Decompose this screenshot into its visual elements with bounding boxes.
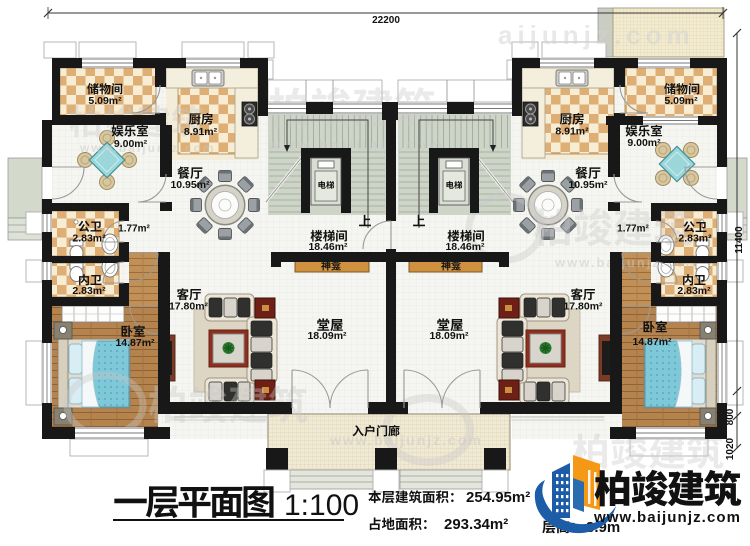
svg-text:18.09m²: 18.09m²	[429, 330, 469, 342]
svg-text:18.09m²: 18.09m²	[307, 330, 347, 342]
svg-text:10.95m²: 10.95m²	[568, 179, 608, 191]
svg-text:18.46m²: 18.46m²	[308, 241, 348, 253]
svg-text:1.77m²: 1.77m²	[118, 224, 150, 235]
svg-text:aijunjz.com: aijunjz.com	[498, 20, 695, 50]
svg-text:14.87m²: 14.87m²	[115, 337, 155, 349]
svg-text:9.00m²: 9.00m²	[114, 138, 148, 150]
svg-text:5.09m²: 5.09m²	[664, 95, 698, 107]
svg-text:2.83m²: 2.83m²	[678, 232, 712, 244]
svg-text:14.87m²: 14.87m²	[632, 336, 672, 348]
svg-text:11400: 11400	[734, 226, 745, 254]
svg-text:800: 800	[725, 408, 736, 425]
svg-text:5.09m²: 5.09m²	[88, 95, 122, 107]
svg-text:8.91m²: 8.91m²	[184, 126, 218, 138]
svg-text:17.80m²: 17.80m²	[169, 300, 209, 312]
svg-text:9.00m²: 9.00m²	[627, 137, 661, 149]
svg-text:2.83m²: 2.83m²	[677, 285, 711, 297]
svg-text:2.83m²: 2.83m²	[72, 232, 106, 244]
svg-text:www.baijunjz.com: www.baijunjz.com	[79, 141, 216, 155]
svg-text:www.baijunjz.com: www.baijunjz.com	[593, 509, 740, 526]
svg-text:1:100: 1:100	[284, 489, 359, 522]
svg-text:293.34m²: 293.34m²	[444, 516, 508, 533]
svg-text:18.46m²: 18.46m²	[445, 241, 485, 253]
svg-text:17.80m²: 17.80m²	[563, 300, 603, 312]
svg-text:1020: 1020	[725, 437, 736, 460]
svg-text:8.91m²: 8.91m²	[555, 125, 589, 137]
svg-text:2.83m²: 2.83m²	[72, 285, 106, 297]
svg-text:10.95m²: 10.95m²	[170, 179, 210, 191]
svg-text:254.95m²: 254.95m²	[466, 489, 530, 506]
svg-text:1.77m²: 1.77m²	[617, 224, 649, 235]
svg-text:22200: 22200	[372, 15, 400, 26]
